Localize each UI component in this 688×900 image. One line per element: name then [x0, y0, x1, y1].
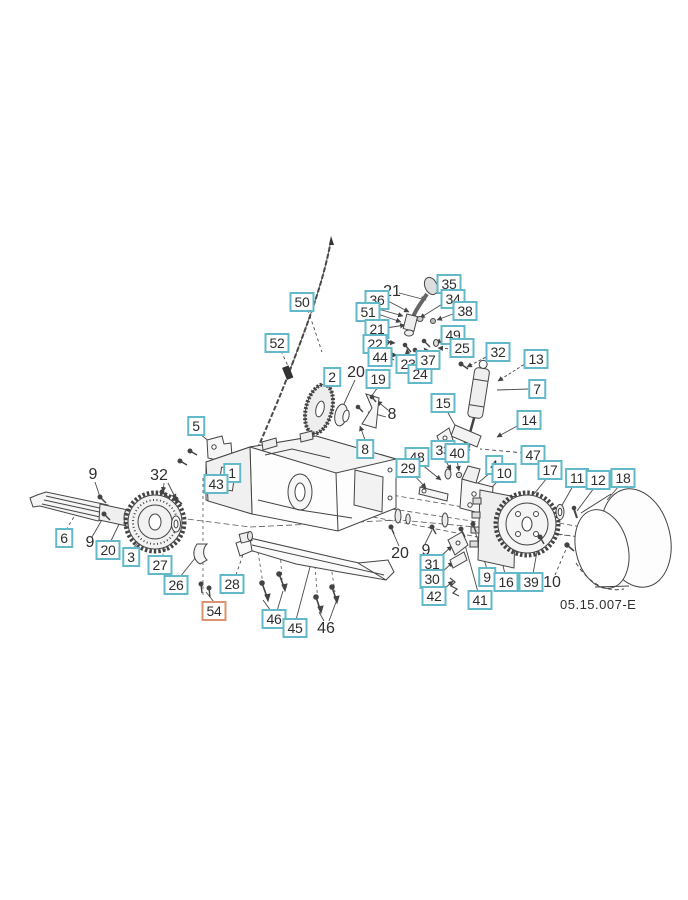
callout-18[interactable]: 18	[611, 468, 636, 488]
callout-5[interactable]: 5	[187, 416, 205, 436]
callout-14[interactable]: 14	[517, 410, 542, 430]
callout-37[interactable]: 37	[416, 350, 441, 370]
diagram-page: 5052213651212244232437492535343822019832…	[0, 0, 688, 900]
callout-32-plain: 32	[150, 468, 168, 484]
callout-40[interactable]: 40	[445, 443, 470, 463]
callout-43[interactable]: 43	[204, 474, 229, 494]
callout-13[interactable]: 13	[524, 349, 549, 369]
callout-20-plain: 20	[347, 365, 365, 381]
callout-19[interactable]: 19	[366, 369, 391, 389]
callout-41[interactable]: 41	[468, 590, 493, 610]
callout-28[interactable]: 28	[220, 574, 245, 594]
callout-42[interactable]: 42	[422, 586, 447, 606]
callout-27[interactable]: 27	[148, 555, 173, 575]
callout-10[interactable]: 10	[492, 463, 517, 483]
callout-45[interactable]: 45	[283, 618, 308, 638]
callout-layer: 5052213651212244232437492535343822019832…	[0, 0, 688, 900]
callout-20-plain: 20	[391, 546, 409, 562]
callout-16[interactable]: 16	[494, 572, 519, 592]
callout-54[interactable]: 54	[202, 601, 227, 621]
callout-7[interactable]: 7	[528, 379, 546, 399]
callout-25[interactable]: 25	[450, 338, 475, 358]
callout-8[interactable]: 8	[356, 439, 374, 459]
callout-10-plain: 10	[543, 575, 561, 591]
callout-20[interactable]: 20	[96, 540, 121, 560]
callout-39[interactable]: 39	[519, 572, 544, 592]
callout-12[interactable]: 12	[586, 470, 611, 490]
callout-3[interactable]: 3	[122, 547, 140, 567]
callout-2[interactable]: 2	[323, 367, 341, 387]
callout-9-plain: 9	[89, 467, 98, 483]
callout-38[interactable]: 38	[453, 301, 478, 321]
callout-44[interactable]: 44	[368, 347, 393, 367]
callout-50[interactable]: 50	[290, 292, 315, 312]
callout-6[interactable]: 6	[55, 528, 73, 548]
callout-29[interactable]: 29	[396, 458, 421, 478]
callout-46-plain: 46	[317, 621, 335, 637]
diagram-code-label: 05.15.007-E	[560, 597, 636, 612]
callout-8-plain: 8	[388, 407, 397, 423]
callout-26[interactable]: 26	[164, 575, 189, 595]
callout-17[interactable]: 17	[538, 460, 563, 480]
callout-32[interactable]: 32	[486, 342, 511, 362]
callout-9-plain: 9	[86, 535, 95, 551]
callout-15[interactable]: 15	[431, 393, 456, 413]
callout-52[interactable]: 52	[265, 333, 290, 353]
